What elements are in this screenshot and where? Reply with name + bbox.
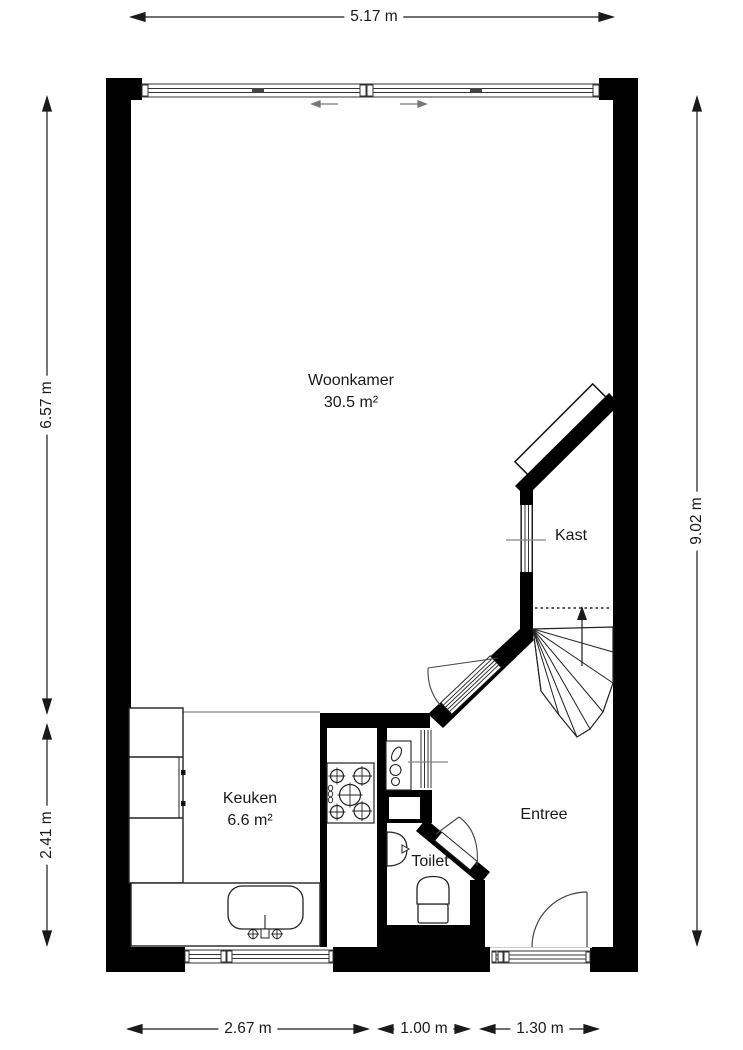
arrowhead-icon	[43, 931, 52, 945]
arrowhead-icon	[481, 1025, 495, 1034]
toilet-icon	[417, 877, 449, 924]
kitchen-cabinets	[129, 708, 186, 883]
dimension-label-left-lower: 2.41 m	[38, 805, 56, 864]
entry-threshold	[492, 951, 590, 963]
kitchen-window	[185, 950, 333, 963]
room-label-toilet: Toilet	[411, 852, 448, 872]
arrowhead-icon	[693, 931, 702, 945]
dimension-label-bottom-right: 1.30 m	[510, 1020, 569, 1038]
arrowhead-icon	[599, 13, 613, 22]
kast-diagonal-window	[515, 384, 611, 480]
floorplan-drawing	[0, 0, 743, 1050]
arrowhead-icon	[584, 1025, 598, 1034]
window-handle	[470, 88, 482, 93]
dimension-label-bottom-middle: 1.00 m	[394, 1020, 453, 1038]
arrowhead-icon	[43, 725, 52, 739]
wall-corner-top-right	[599, 78, 638, 100]
top-sliding-window	[142, 84, 599, 97]
arrowhead-icon	[693, 97, 702, 111]
wall-duct-inset	[389, 797, 420, 819]
wall-bottom-1	[106, 947, 185, 972]
cabinet-hinge	[181, 801, 186, 806]
entry-door-swing-icon	[532, 892, 587, 947]
window-handle	[252, 88, 264, 93]
dimension-label-bottom-left: 2.67 m	[218, 1020, 277, 1038]
wall-corner-top-left	[106, 78, 142, 100]
sliding-window-arrow-icon	[312, 101, 426, 107]
wall-kitchen-left	[320, 713, 327, 947]
cabinet-hinge	[181, 770, 186, 775]
room-label-kast: Kast	[555, 526, 587, 546]
arrowhead-icon	[43, 699, 52, 713]
wall-toilet-right	[470, 880, 485, 925]
room-area-woonkamer: 30.5 m²	[324, 393, 378, 413]
door-arc	[532, 892, 587, 947]
room-label-entree: Entree	[520, 805, 567, 825]
arrowhead-icon	[379, 1025, 393, 1034]
door-leaf	[436, 817, 459, 834]
arrowhead-icon	[43, 97, 52, 111]
arrowhead-icon	[128, 1025, 142, 1034]
wall-right	[613, 78, 638, 972]
floorplan-canvas: Woonkamer 30.5 m² Kast Keuken 6.6 m² Toi…	[0, 0, 743, 1050]
kast-glazed-panel	[506, 505, 546, 572]
niche-glazed-panel	[408, 730, 448, 788]
stove-icon	[327, 763, 374, 823]
wall-toilet-bottom	[377, 925, 485, 947]
arrowhead-icon	[131, 13, 145, 22]
niche-fixture-icon	[386, 741, 411, 790]
washbasin-icon	[387, 832, 409, 866]
arrowhead-icon	[354, 1025, 368, 1034]
door-arc	[428, 668, 440, 705]
wall-kitchen-top	[320, 713, 430, 728]
wall-bottom-2	[333, 947, 490, 972]
room-label-woonkamer: Woonkamer	[308, 371, 394, 391]
arrowhead-icon	[455, 1025, 469, 1034]
dimension-label-top: 5.17 m	[344, 8, 403, 26]
walls	[106, 78, 638, 972]
room-label-keuken: Keuken	[223, 789, 277, 809]
wall-bottom-3	[590, 947, 638, 972]
wall-left	[106, 78, 131, 972]
faucet-body	[261, 929, 269, 938]
room-area-keuken: 6.6 m²	[227, 811, 272, 831]
dimension-label-left-upper: 6.57 m	[38, 375, 56, 434]
stairs-icon	[533, 606, 613, 737]
dimension-label-right: 9.02 m	[688, 491, 706, 550]
